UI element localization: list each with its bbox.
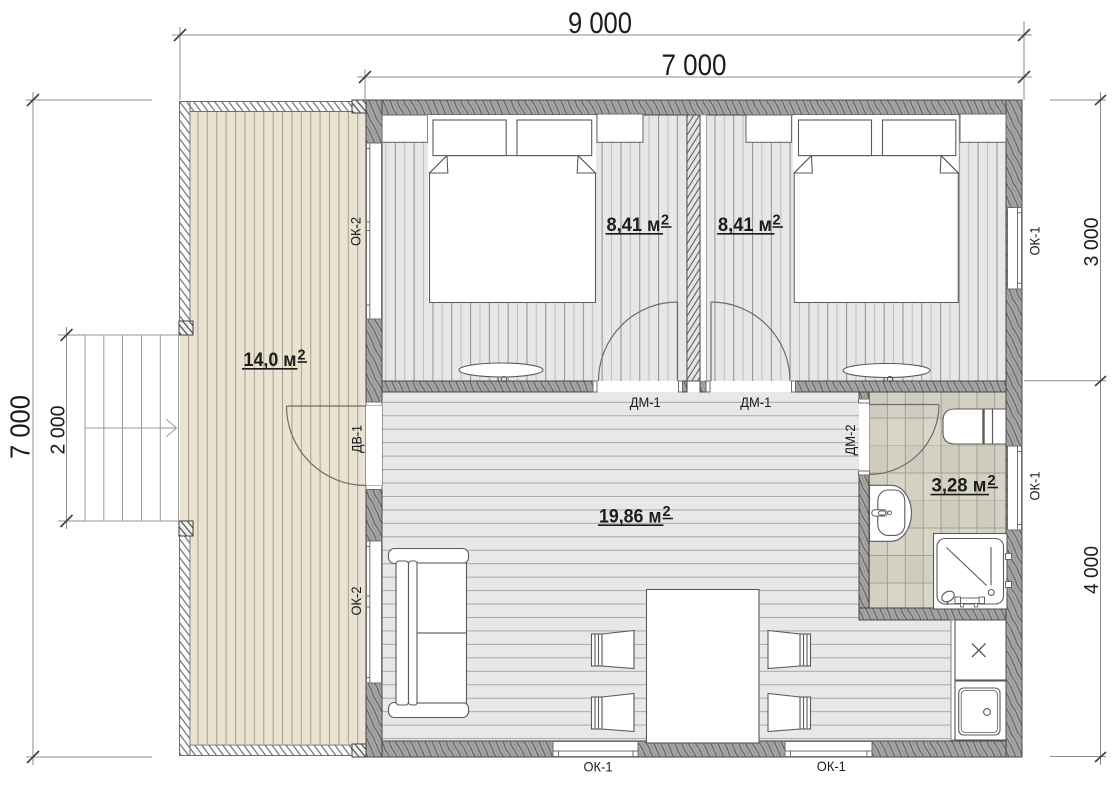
svg-text:ОК-1: ОК-1	[1027, 471, 1043, 500]
svg-text:ОК-2: ОК-2	[348, 586, 364, 615]
svg-text:ОК-1: ОК-1	[817, 758, 846, 774]
svg-text:2: 2	[773, 213, 781, 229]
svg-text:2 000: 2 000	[47, 406, 70, 455]
svg-text:ДМ-1: ДМ-1	[630, 394, 661, 410]
svg-text:9 000: 9 000	[568, 7, 632, 40]
svg-text:2: 2	[298, 348, 306, 364]
svg-text:ОК-1: ОК-1	[1027, 226, 1043, 255]
svg-text:4 000: 4 000	[1080, 546, 1103, 594]
svg-text:ОК-1: ОК-1	[584, 759, 613, 775]
svg-text:2: 2	[988, 473, 996, 489]
svg-text:8,41 м: 8,41 м	[718, 214, 772, 236]
svg-text:3 000: 3 000	[1080, 218, 1103, 267]
svg-text:7 000: 7 000	[662, 49, 727, 82]
svg-text:19,86 м: 19,86 м	[599, 506, 662, 528]
svg-text:14,0 м: 14,0 м	[244, 349, 297, 371]
svg-text:8,41 м: 8,41 м	[607, 214, 661, 236]
svg-text:3,28 м: 3,28 м	[932, 475, 987, 497]
svg-text:ДВ-1: ДВ-1	[349, 425, 365, 453]
svg-text:2: 2	[661, 213, 669, 229]
svg-text:ДМ-1: ДМ-1	[740, 394, 771, 410]
svg-text:ДМ-2: ДМ-2	[842, 424, 858, 455]
svg-text:7 000: 7 000	[5, 395, 36, 459]
svg-text:ОК-2: ОК-2	[348, 217, 364, 246]
svg-text:2: 2	[663, 504, 671, 520]
